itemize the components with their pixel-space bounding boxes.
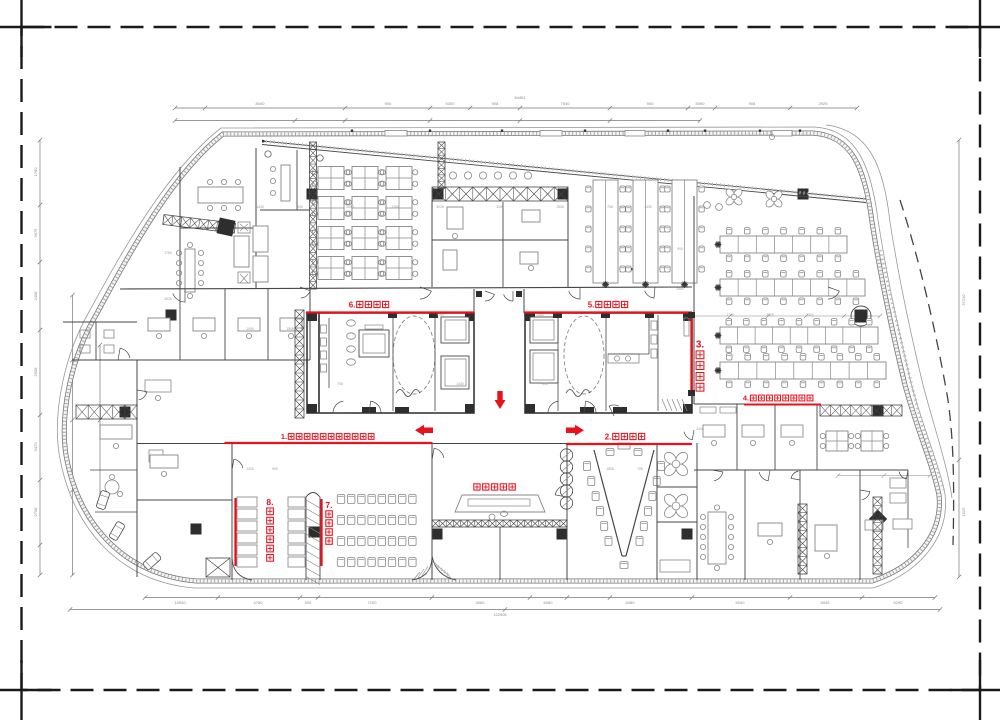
svg-text:708: 708 [337, 382, 343, 386]
svg-text:708: 708 [607, 205, 613, 209]
svg-text:2925: 2925 [819, 101, 829, 106]
svg-text:1780: 1780 [33, 167, 38, 177]
svg-text:1760: 1760 [391, 205, 399, 209]
svg-text:6080: 6080 [544, 600, 554, 605]
svg-text:3675: 3675 [33, 228, 38, 238]
svg-text:1508: 1508 [556, 205, 564, 209]
svg-text:8040: 8040 [256, 101, 266, 106]
svg-text:900: 900 [305, 600, 312, 605]
svg-text:3.: 3. [696, 339, 705, 350]
svg-text:6080: 6080 [626, 600, 636, 605]
svg-text:4.: 4. [743, 394, 749, 403]
svg-text:2.: 2. [605, 432, 612, 441]
svg-text:5300: 5300 [446, 101, 456, 106]
svg-text:1525: 1525 [961, 507, 966, 517]
svg-text:4060: 4060 [476, 600, 486, 605]
svg-text:2440: 2440 [696, 427, 704, 431]
svg-text:3025: 3025 [436, 205, 444, 209]
svg-text:3470: 3470 [33, 442, 38, 452]
svg-text:2408: 2408 [33, 291, 38, 301]
svg-text:7100: 7100 [368, 600, 378, 605]
svg-text:1760: 1760 [726, 313, 734, 317]
svg-text:4750: 4750 [254, 600, 264, 605]
svg-text:10940: 10940 [174, 600, 186, 605]
svg-text:900: 900 [542, 382, 548, 386]
svg-text:2440: 2440 [346, 205, 354, 209]
svg-text:908: 908 [492, 101, 499, 106]
svg-text:6.: 6. [349, 300, 356, 309]
svg-text:900: 900 [647, 101, 654, 106]
svg-text:2908: 2908 [33, 367, 38, 377]
svg-text:1.: 1. [281, 432, 287, 441]
svg-text:1508: 1508 [606, 467, 614, 471]
svg-text:708: 708 [637, 467, 643, 471]
svg-text:5090: 5090 [696, 101, 706, 106]
svg-text:2708: 2708 [33, 507, 38, 517]
svg-text:5.: 5. [588, 300, 595, 309]
svg-text:3025: 3025 [766, 313, 774, 317]
svg-text:900: 900 [677, 247, 683, 251]
svg-text:5045: 5045 [821, 600, 831, 605]
svg-text:5040: 5040 [736, 600, 746, 605]
svg-text:1000: 1000 [496, 205, 504, 209]
svg-text:1760: 1760 [164, 251, 172, 255]
svg-text:908: 908 [749, 101, 756, 106]
svg-text:6290: 6290 [894, 600, 904, 605]
svg-text:64451: 64451 [514, 95, 526, 100]
svg-text:7540: 7540 [561, 101, 571, 106]
svg-text:3025: 3025 [164, 297, 172, 301]
svg-text:1508: 1508 [286, 327, 294, 331]
svg-text:900: 900 [385, 101, 392, 106]
svg-text:1430: 1430 [456, 382, 464, 386]
svg-text:2440: 2440 [676, 287, 684, 291]
svg-text:1000: 1000 [246, 327, 254, 331]
svg-text:1000: 1000 [806, 313, 814, 317]
svg-text:1430: 1430 [246, 467, 254, 471]
svg-text:8.: 8. [266, 497, 273, 507]
svg-text:900: 900 [297, 205, 303, 209]
svg-text:900: 900 [272, 467, 278, 471]
svg-text:37210: 37210 [961, 294, 966, 306]
svg-text:7.: 7. [326, 501, 333, 510]
svg-text:1430: 1430 [256, 205, 264, 209]
svg-text:1430: 1430 [644, 205, 652, 209]
svg-text:122908: 122908 [493, 612, 507, 617]
